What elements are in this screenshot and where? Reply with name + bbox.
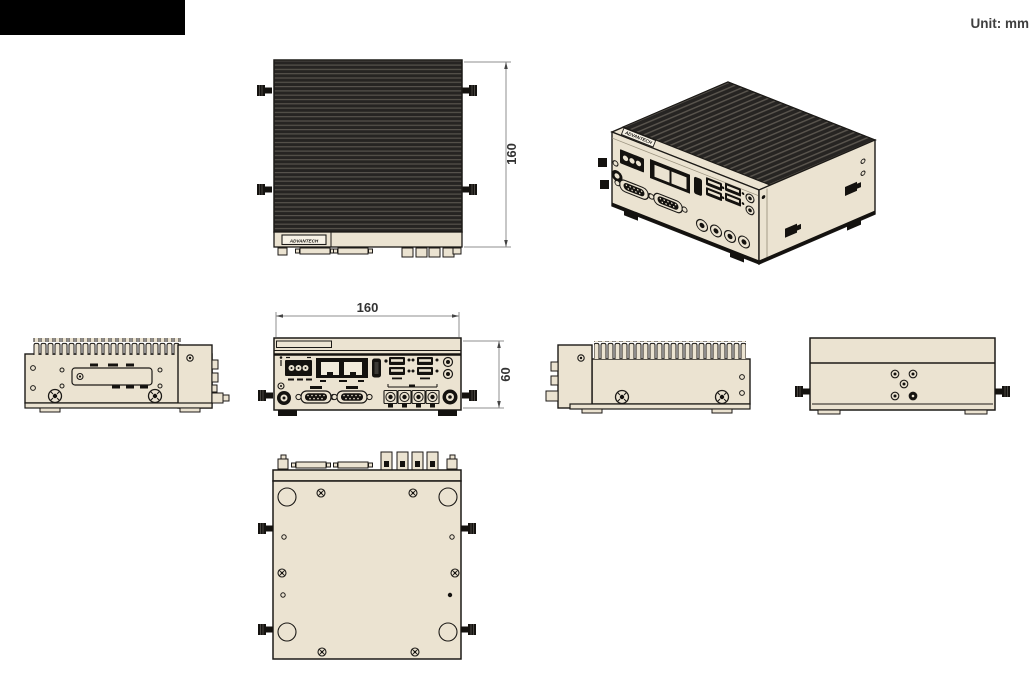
rear-panel — [810, 338, 995, 410]
heatsink-fins-top — [274, 60, 462, 232]
top-lip-step — [277, 341, 332, 348]
foot-knob — [149, 390, 162, 403]
heatsink-fins-side — [594, 341, 746, 359]
screw — [409, 489, 417, 497]
dim-value-front-height: 60 — [498, 367, 513, 381]
front-connectors-edge — [278, 248, 461, 257]
front-view: 160 60 — [258, 300, 513, 416]
dim-value-front-width: 160 — [357, 300, 379, 315]
hole — [448, 593, 452, 597]
dimension-160-horizontal: 160 — [276, 300, 459, 337]
foot-knob — [49, 390, 62, 403]
rear-view — [795, 338, 1010, 414]
left-side-view — [25, 338, 229, 412]
dimension-drawing-page: Unit: mm — [0, 0, 1035, 674]
top-view: ADVANTECH 160 — [257, 60, 519, 257]
antenna-connector — [461, 624, 476, 635]
serial-port-com2 — [332, 391, 372, 403]
bottom-view — [258, 452, 476, 659]
bottom-plate — [273, 481, 461, 659]
isometric-view: ADVANTECH — [598, 82, 875, 269]
front-lip — [273, 470, 461, 481]
expansion-slot — [72, 368, 152, 385]
antenna-connector — [795, 386, 810, 397]
front-connectors-edge — [278, 452, 457, 470]
led-indicator — [384, 359, 387, 362]
antenna-connector — [600, 180, 609, 189]
antenna-connector — [462, 85, 477, 96]
screw — [278, 569, 286, 577]
drawing-canvas: ADVANTECH 160 — [0, 0, 1035, 674]
connector-protrusions — [546, 362, 558, 401]
connector-protrusions — [212, 360, 229, 403]
power-button — [277, 391, 291, 405]
antenna-connector — [598, 158, 607, 167]
screw — [451, 569, 459, 577]
antenna-connector — [258, 523, 273, 534]
screw — [411, 648, 419, 656]
serial-port-com1 — [296, 391, 336, 403]
antenna-connector — [995, 386, 1010, 397]
antenna-connector — [257, 184, 272, 195]
foot-knob — [616, 391, 629, 404]
front-panel-edge — [178, 345, 212, 408]
foot — [438, 410, 457, 416]
advantech-logo: ADVANTECH — [289, 238, 319, 243]
antenna-connector — [258, 624, 273, 635]
antenna-jack — [443, 390, 458, 405]
antenna-connector — [462, 184, 477, 195]
foot — [278, 410, 297, 416]
foot-knob — [716, 391, 729, 404]
base-bar — [25, 403, 212, 408]
screw — [318, 648, 326, 656]
antenna-connector — [461, 523, 476, 534]
front-panel-edge — [558, 345, 592, 408]
dim-value-top-height: 160 — [504, 143, 519, 165]
antenna-connector — [462, 390, 477, 401]
heatsink-fins-side — [33, 338, 181, 355]
base-bar — [570, 404, 750, 409]
right-side-view — [546, 341, 750, 413]
antenna-connector — [258, 390, 273, 401]
antenna-connector — [257, 85, 272, 96]
screw — [317, 489, 325, 497]
